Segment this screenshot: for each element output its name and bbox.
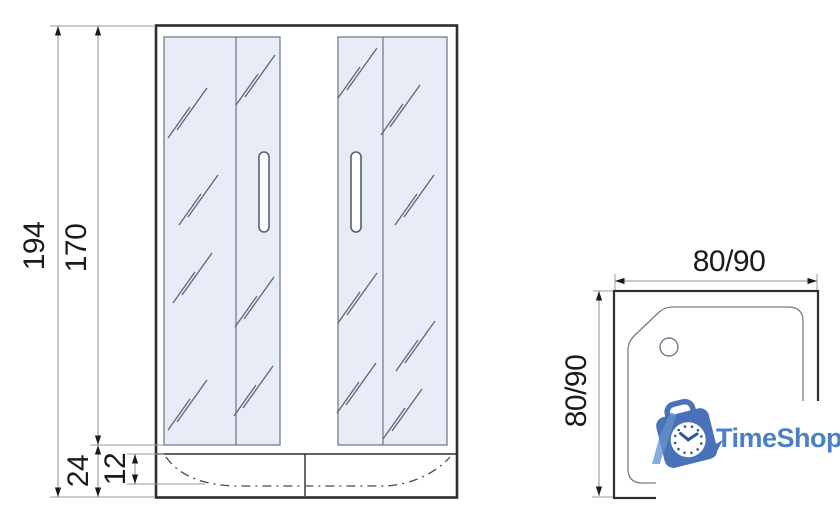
technical-drawing-canvas: 194 170 24 12 80/90 80/90 (0, 0, 840, 523)
brand-name: TimeShop (716, 423, 840, 453)
dim-label-tray-depth: 80/90 (560, 355, 593, 428)
tray-basin-hidden-outline (166, 457, 450, 486)
drain-hole (660, 338, 678, 356)
dim-label-tray-width: 80/90 (693, 245, 766, 278)
left-door-assembly (164, 37, 280, 445)
left-door-handle (259, 152, 269, 232)
right-door-handle (351, 152, 361, 232)
right-door-assembly (338, 37, 447, 445)
dim-label-tray-inner-height: 12 (99, 453, 132, 485)
watermark-logo: TimeShop (652, 397, 840, 523)
shower-cabin-dimension-drawing: 194 170 24 12 80/90 80/90 (0, 0, 840, 523)
front-view (156, 26, 457, 498)
dim-label-total-height: 194 (18, 222, 51, 271)
dim-label-door-height: 170 (60, 224, 93, 273)
dim-label-tray-height: 24 (62, 455, 95, 487)
tray-front (156, 454, 457, 496)
